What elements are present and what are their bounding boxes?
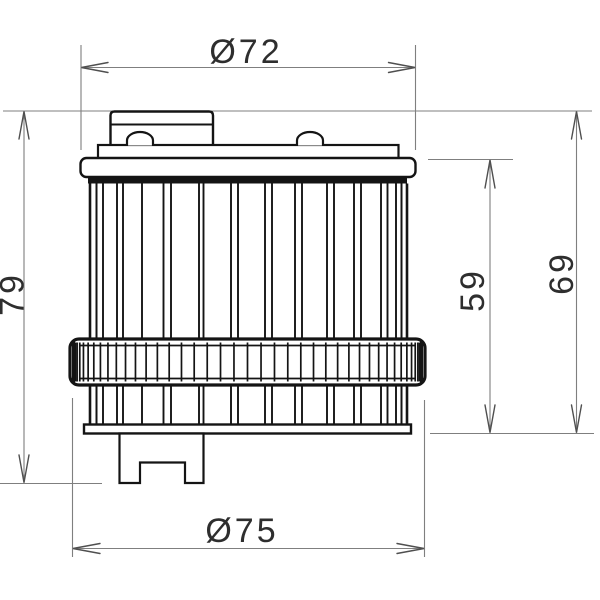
label-top-diameter: Ø72: [209, 33, 282, 71]
label-cap-height: 69: [543, 251, 581, 295]
mounting-plate: [98, 145, 399, 159]
filter-body: [70, 112, 425, 484]
spot-weld-bump-left: [127, 132, 153, 146]
knurled-band: [70, 339, 425, 385]
filter-top-cap: [111, 112, 214, 146]
label-bottom-diameter: Ø75: [205, 512, 278, 550]
spot-weld-bump-right: [297, 132, 323, 146]
label-overall-height: 79: [0, 272, 32, 316]
flange-shadow-band: [88, 177, 407, 184]
drawing-canvas: Ø72 Ø75 79 59 69: [0, 0, 600, 600]
bottom-end-plate: [84, 425, 411, 434]
top-flange: [81, 158, 416, 177]
label-flange-height: 59: [454, 268, 492, 312]
knurl-hatching: [74, 341, 422, 383]
filter-technical-drawing: Ø72 Ø75 79 59 69: [0, 0, 600, 600]
pleated-element-upper: [90, 184, 407, 340]
bottom-fitting: [120, 434, 204, 484]
pleated-element-lower: [90, 385, 407, 424]
